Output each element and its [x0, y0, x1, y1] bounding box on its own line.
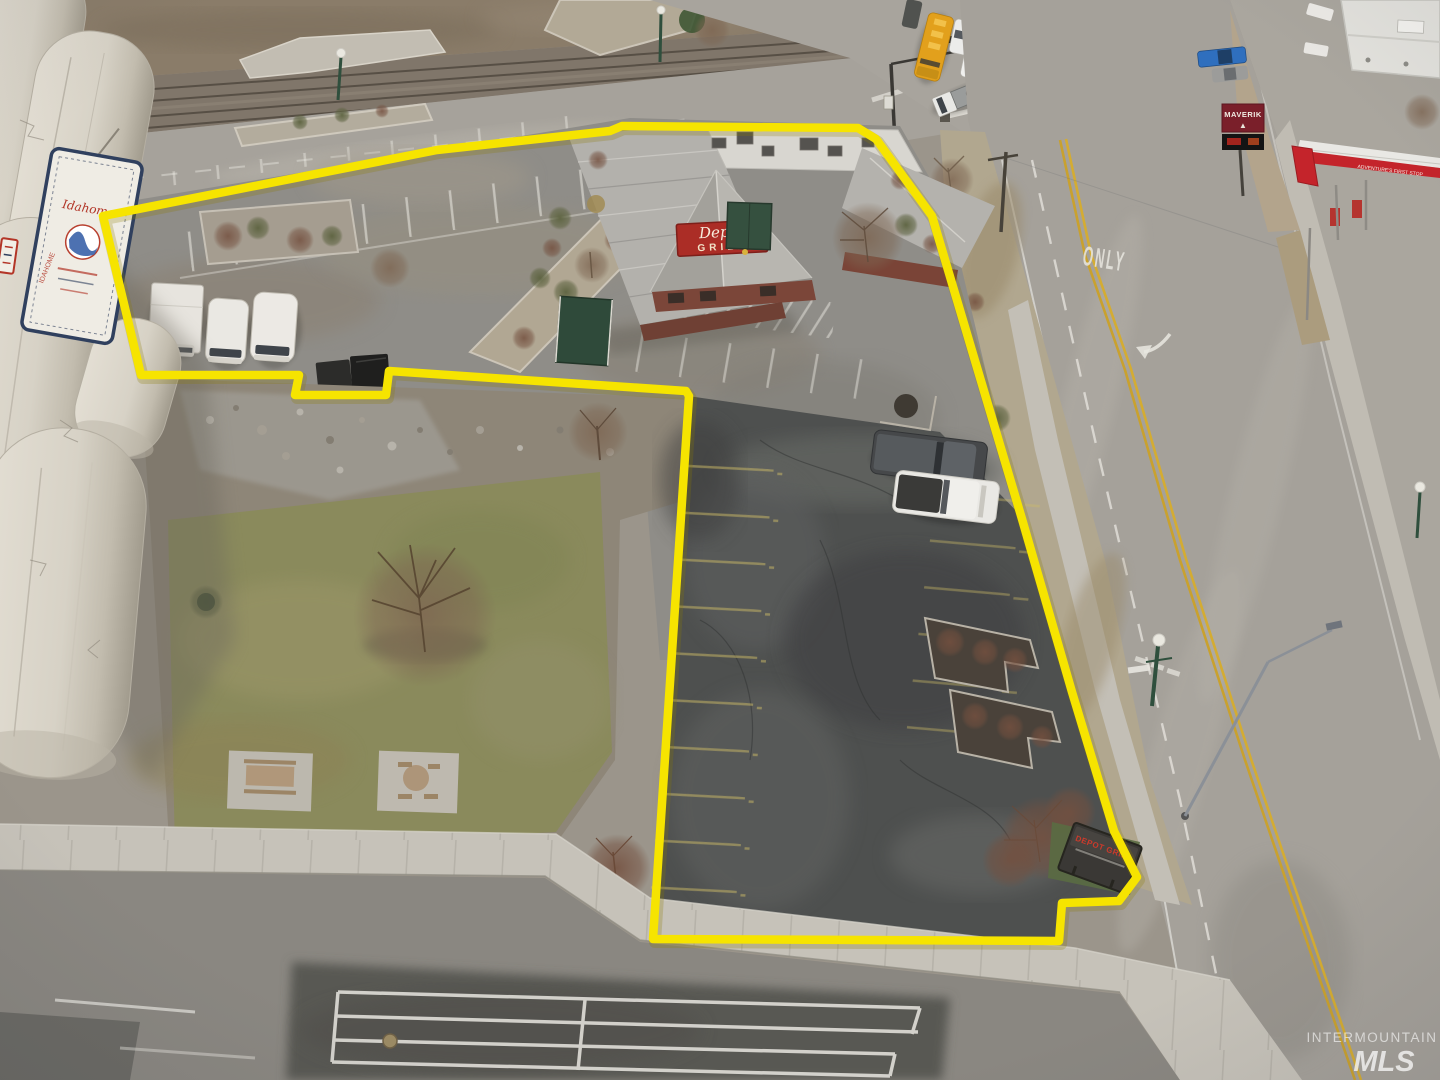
- watermark-line1: INTERMOUNTAIN: [1307, 1030, 1438, 1045]
- watermark-line2: MLS: [1353, 1046, 1415, 1078]
- vignette: [0, 0, 1440, 1080]
- aerial-photo: ONLY ▲ MAVERIK: [0, 0, 1440, 1080]
